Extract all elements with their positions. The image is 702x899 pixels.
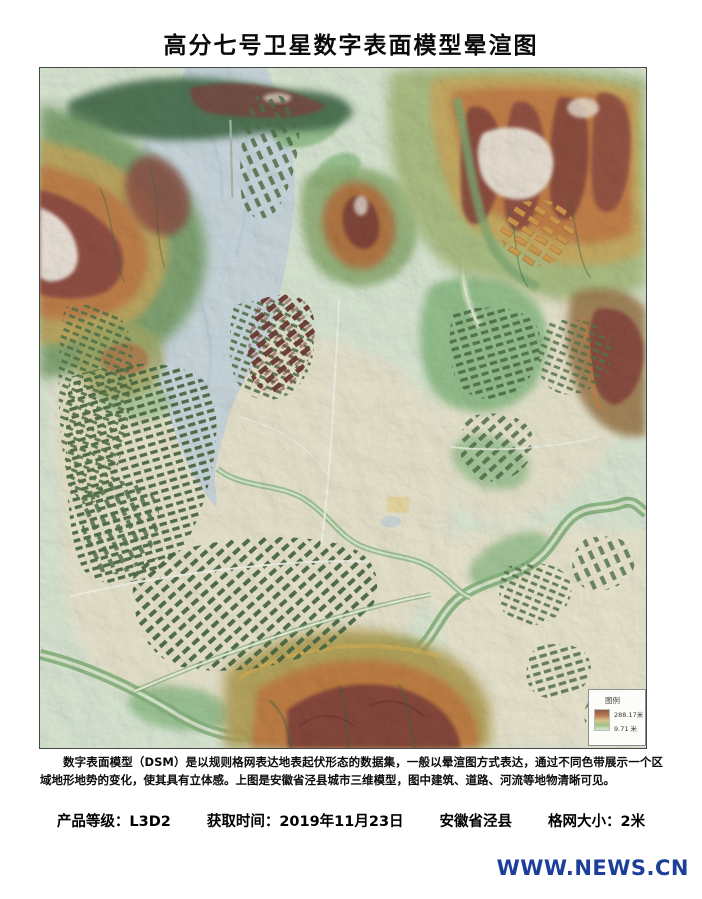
legend-max-label: 288.17米 <box>614 709 643 719</box>
hillshade-map-art <box>40 68 646 748</box>
page-title: 高分七号卫星数字表面模型晕渲图 <box>0 26 702 60</box>
info-location: 安徽省泾县 <box>440 810 513 831</box>
legend-min-label: 9.71 米 <box>614 723 643 733</box>
watermark: WWW.NEWS.CN <box>497 856 689 880</box>
info-product-level: 产品等级：L3D2 <box>57 810 171 831</box>
product-info-row: 产品等级：L3D2 获取时间：2019年11月23日 安徽省泾县 格网大小：2米 <box>0 810 702 831</box>
elevation-ramp <box>594 709 610 731</box>
info-grid-size: 格网大小：2米 <box>548 810 645 831</box>
legend-title: 图例 <box>605 695 645 706</box>
description-text: 数字表面模型（DSM）是以规则格网表达地表起伏形态的数据集，一般以晕渲图方式表达… <box>40 754 663 790</box>
dsm-map-frame: 图例 288.17米 9.71 米 <box>39 67 647 749</box>
map-legend: 图例 288.17米 9.71 米 <box>588 689 646 746</box>
info-acquisition-time: 获取时间：2019年11月23日 <box>207 810 404 831</box>
legend-body: 288.17米 9.71 米 <box>594 709 645 733</box>
page-root: 高分七号卫星数字表面模型晕渲图 <box>0 0 702 899</box>
grain-overlay <box>40 68 646 748</box>
legend-values: 288.17米 9.71 米 <box>614 709 643 733</box>
